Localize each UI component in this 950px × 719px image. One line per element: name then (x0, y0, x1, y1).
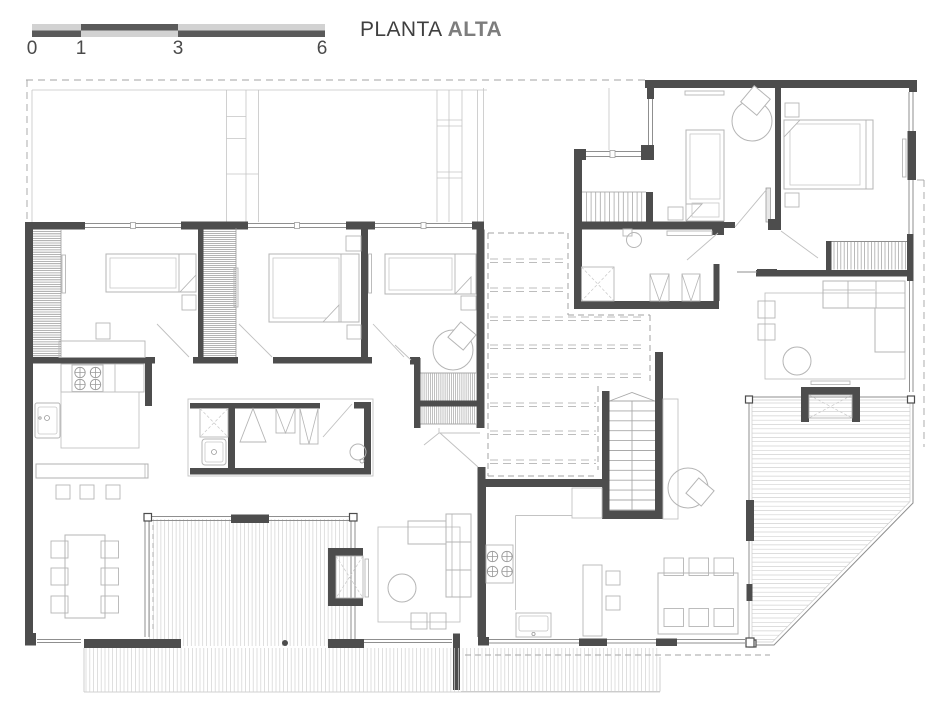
svg-text:6: 6 (317, 38, 328, 59)
svg-text:3: 3 (173, 38, 184, 59)
svg-text:1: 1 (76, 38, 87, 59)
svg-text:0: 0 (27, 38, 38, 59)
svg-text:PLANTA ALTA: PLANTA ALTA (360, 18, 502, 41)
